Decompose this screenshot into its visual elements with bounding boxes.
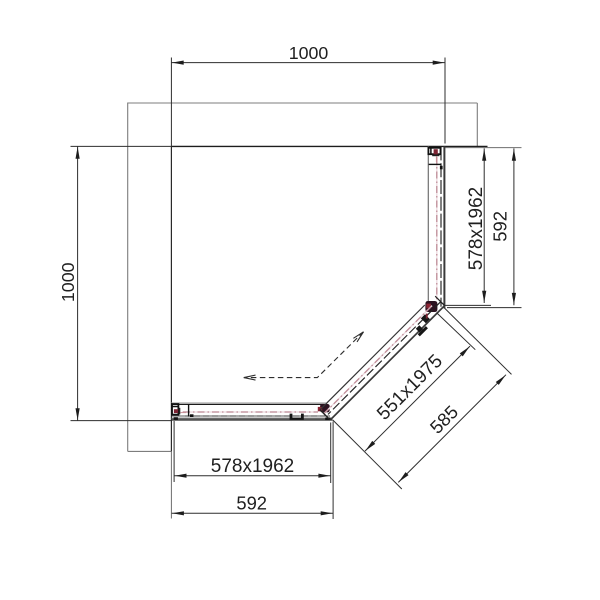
svg-text:578x1962: 578x1962: [211, 456, 294, 477]
svg-text:585: 585: [426, 401, 463, 438]
svg-text:592: 592: [236, 492, 267, 513]
svg-text:578x1962: 578x1962: [466, 187, 487, 270]
svg-text:1000: 1000: [289, 43, 329, 63]
svg-text:592: 592: [490, 211, 511, 242]
svg-text:1000: 1000: [58, 262, 78, 302]
